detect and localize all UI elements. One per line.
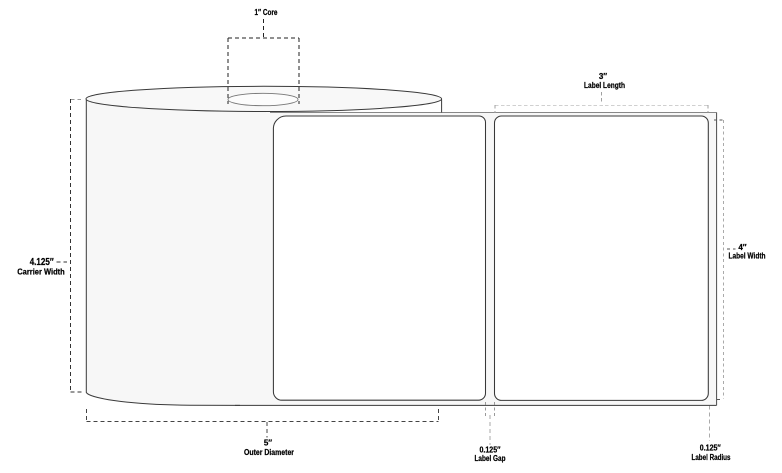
svg-text:1″ Core: 1″ Core [255,8,278,17]
svg-text:Label Length: Label Length [584,81,625,90]
svg-text:Carrier Width: Carrier Width [17,268,65,277]
svg-text:0.125″: 0.125″ [480,445,501,454]
svg-text:Label Radius: Label Radius [692,453,731,462]
svg-text:4″: 4″ [738,243,746,252]
svg-text:4.125″: 4.125″ [30,256,54,268]
svg-text:Label Gap: Label Gap [475,454,506,463]
svg-text:3″: 3″ [599,72,607,81]
svg-text:0.125″: 0.125″ [700,444,721,453]
svg-text:5″: 5″ [264,439,272,448]
svg-text:Outer Diameter: Outer Diameter [244,448,294,457]
svg-text:Label Width: Label Width [729,252,766,261]
